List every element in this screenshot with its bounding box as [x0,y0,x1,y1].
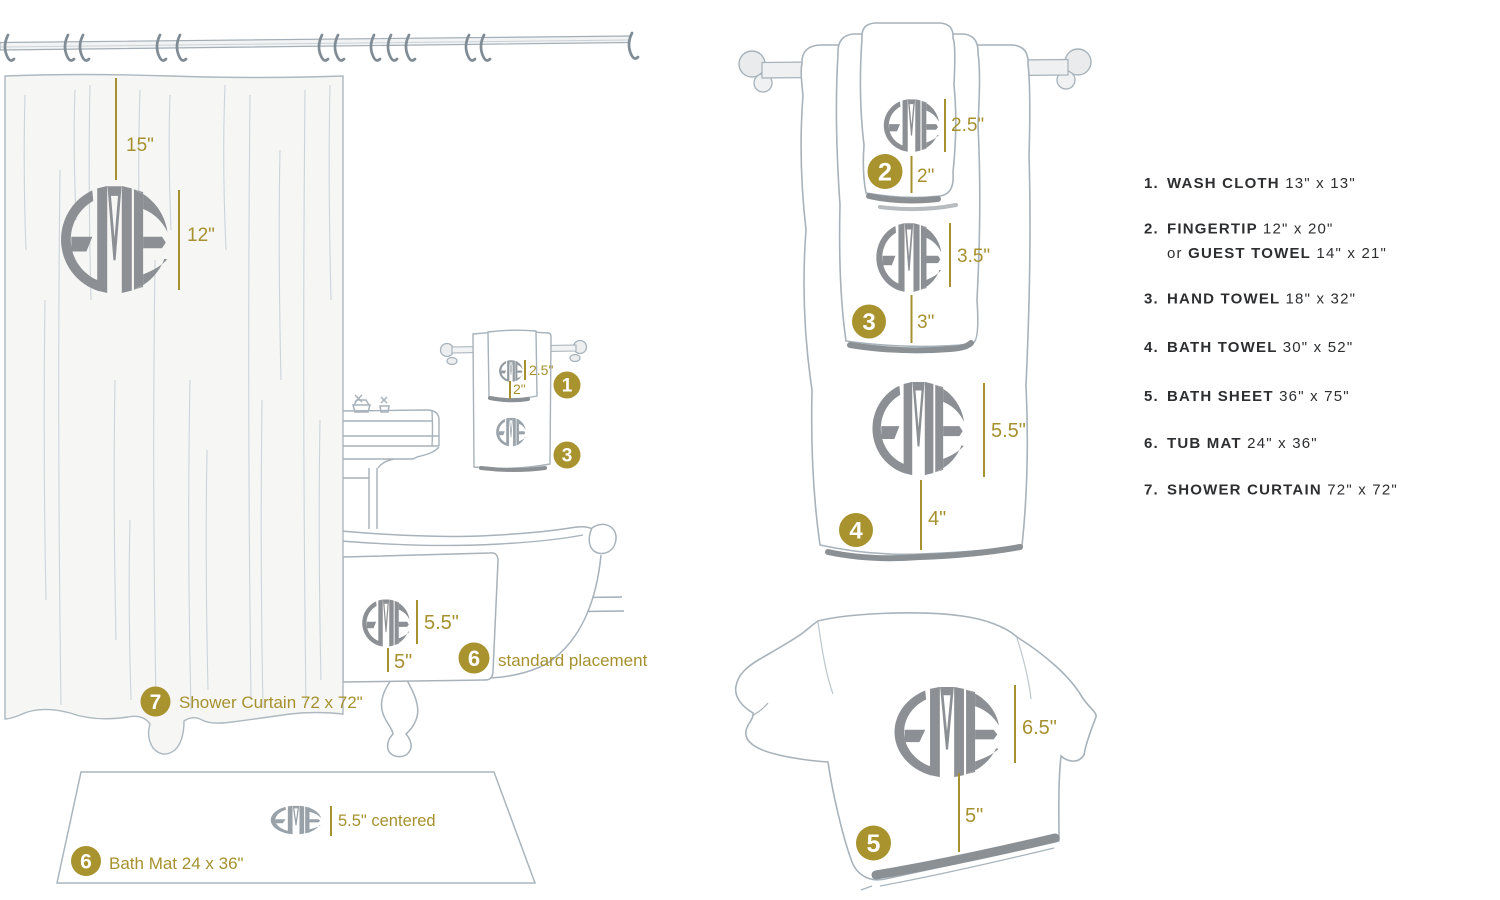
svg-text:3.5": 3.5" [957,246,990,267]
svg-text:6.TUB MAT 24" x 36": 6.TUB MAT 24" x 36" [1144,435,1318,452]
svg-text:5.5" centered: 5.5" centered [338,812,436,830]
svg-text:2.FINGERTIP 12" x 20": 2.FINGERTIP 12" x 20" [1144,221,1334,238]
svg-text:12": 12" [187,225,215,246]
svg-text:6: 6 [468,646,480,671]
svg-text:15": 15" [126,135,154,156]
svg-text:7: 7 [150,691,162,714]
svg-text:3.HAND TOWEL 18" x 32": 3.HAND TOWEL 18" x 32" [1144,291,1356,308]
svg-text:Shower Curtain 72 x 72": Shower Curtain 72 x 72" [179,693,363,712]
svg-text:4": 4" [928,508,946,530]
svg-text:5.BATH SHEET 36" x 75": 5.BATH SHEET 36" x 75" [1144,388,1350,405]
svg-text:3: 3 [562,446,573,467]
svg-text:5.5": 5.5" [424,612,459,634]
svg-text:2.5": 2.5" [951,115,984,136]
svg-text:2: 2 [878,158,892,186]
svg-text:5": 5" [965,805,983,827]
svg-text:1: 1 [562,376,573,397]
svg-text:Bath Mat 24 x 36": Bath Mat 24 x 36" [109,854,244,873]
svg-text:2": 2" [917,166,934,187]
svg-text:5: 5 [867,830,881,858]
svg-text:5.5": 5.5" [991,420,1026,442]
svg-text:3: 3 [862,309,875,336]
svg-text:3": 3" [917,312,934,333]
svg-text:6: 6 [80,850,92,873]
svg-text:1.WASH CLOTH 13" x 13": 1.WASH CLOTH 13" x 13" [1144,175,1356,192]
svg-text:5": 5" [394,651,412,673]
svg-text:2.5": 2.5" [529,362,553,378]
svg-text:standard placement: standard placement [498,651,648,670]
svg-text:4.BATH TOWEL 30" x 52": 4.BATH TOWEL 30" x 52" [1144,339,1353,356]
svg-text:4: 4 [849,518,863,545]
svg-text:7.SHOWER CURTAIN 72" x 72": 7.SHOWER CURTAIN 72" x 72" [1144,482,1398,499]
svg-text:or GUEST TOWEL 14" x 21": or GUEST TOWEL 14" x 21" [1167,245,1387,262]
svg-text:2": 2" [513,381,526,397]
svg-text:6.5": 6.5" [1022,717,1057,739]
